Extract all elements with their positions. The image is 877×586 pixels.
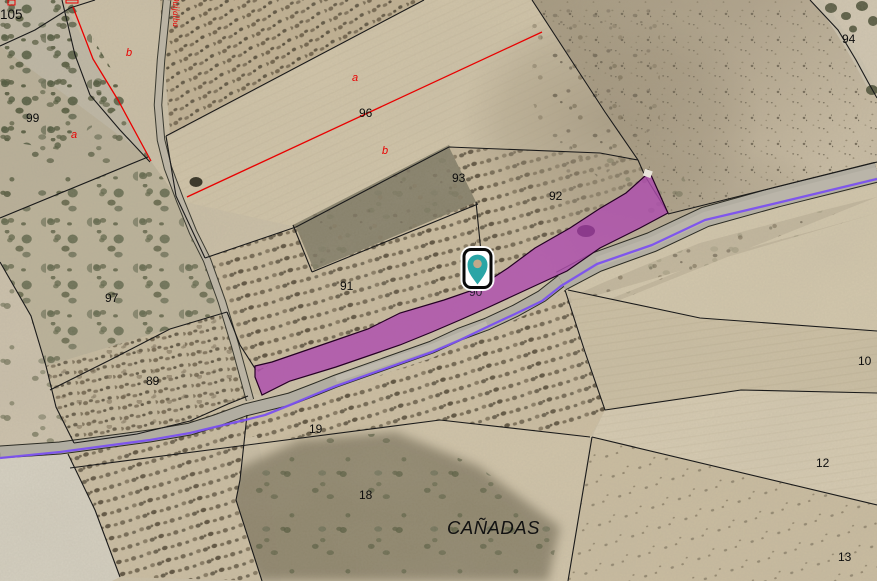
svg-text:99: 99 xyxy=(26,111,40,125)
svg-text:13: 13 xyxy=(838,550,852,564)
svg-text:94: 94 xyxy=(842,32,856,46)
svg-text:19: 19 xyxy=(309,422,323,436)
svg-text:93: 93 xyxy=(452,171,466,185)
svg-text:91: 91 xyxy=(340,279,354,293)
svg-text:89: 89 xyxy=(146,374,160,388)
svg-text:b: b xyxy=(126,47,132,59)
svg-text:a: a xyxy=(352,72,358,84)
svg-text:96: 96 xyxy=(359,106,373,120)
svg-text:12: 12 xyxy=(816,456,830,470)
svg-text:97: 97 xyxy=(105,291,119,305)
svg-text:CAÑADAS: CAÑADAS xyxy=(447,517,540,538)
svg-text:b: b xyxy=(382,145,388,157)
svg-text:a: a xyxy=(71,129,77,141)
svg-text:Quijalba: Quijalba xyxy=(171,0,181,28)
svg-text:105: 105 xyxy=(0,7,23,22)
svg-text:92: 92 xyxy=(549,189,563,203)
svg-text:18: 18 xyxy=(359,488,373,502)
svg-text:10: 10 xyxy=(858,354,872,368)
